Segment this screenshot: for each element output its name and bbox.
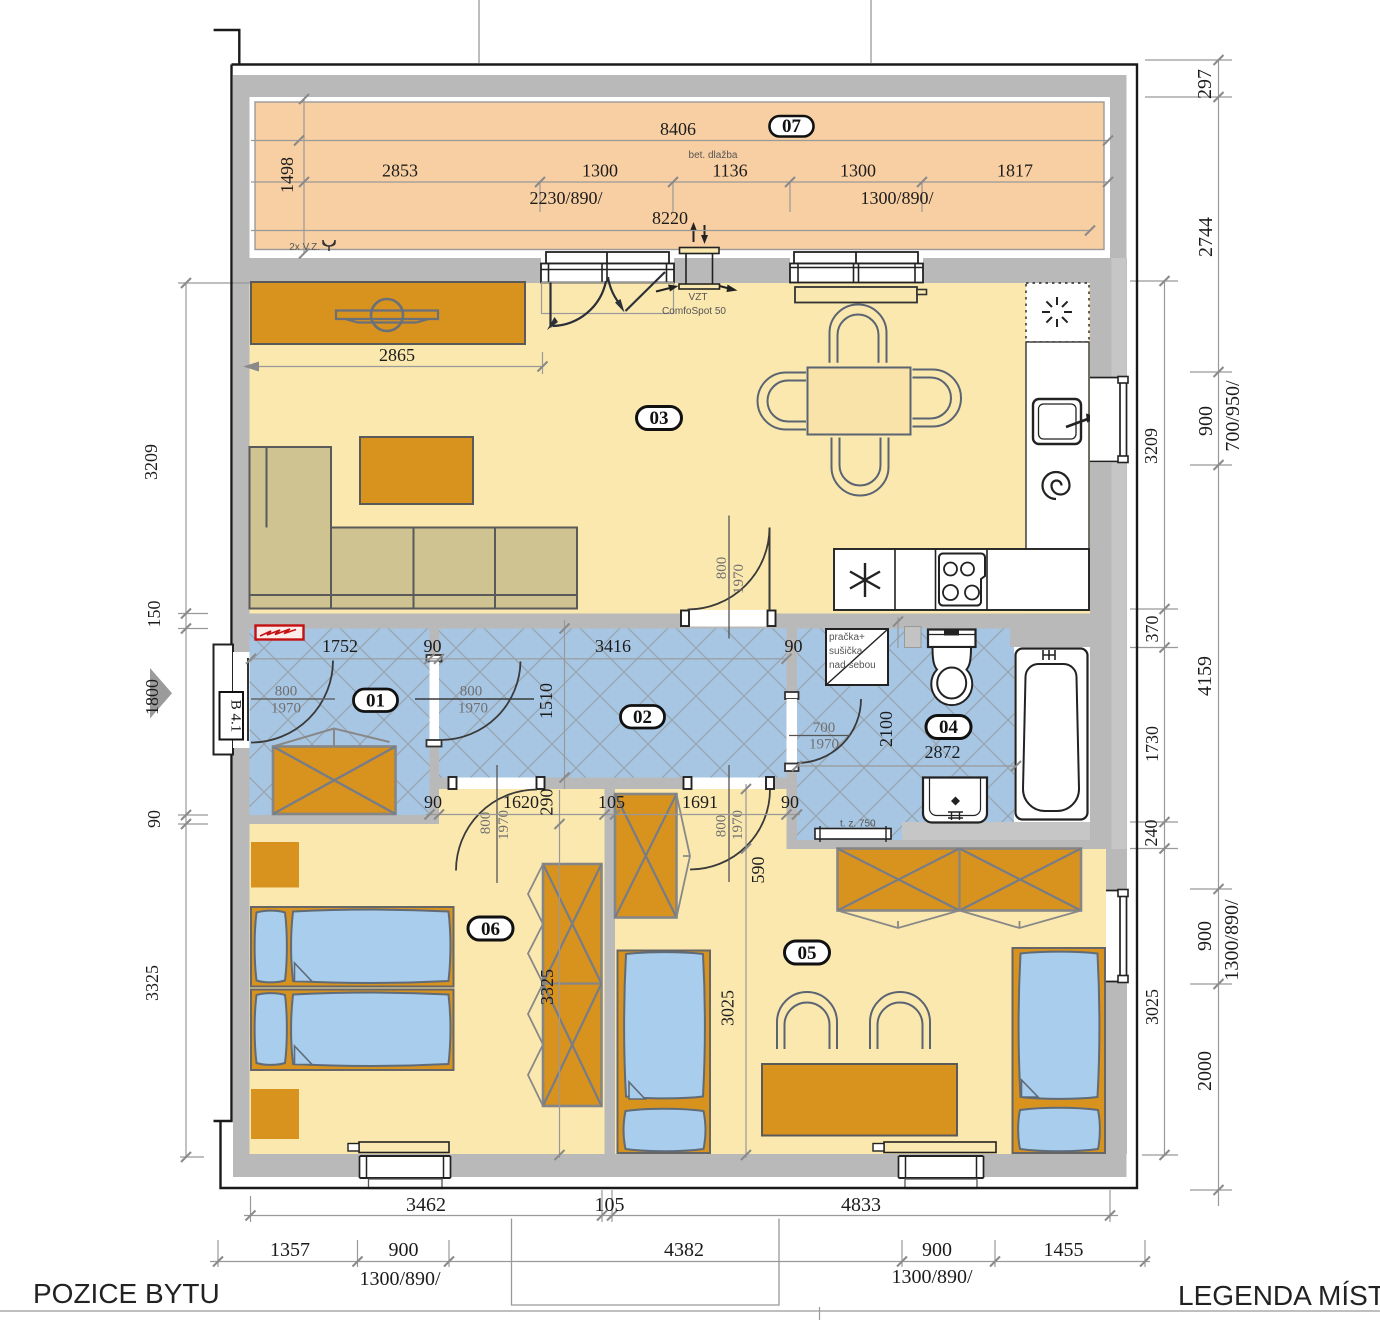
- svg-text:90: 90: [144, 810, 164, 828]
- svg-text:POZICE BYTU: POZICE BYTU: [33, 1278, 220, 1309]
- svg-text:03: 03: [650, 408, 669, 429]
- svg-text:1498: 1498: [277, 157, 297, 193]
- svg-text:2744: 2744: [1195, 217, 1217, 257]
- svg-text:370: 370: [1142, 616, 1162, 643]
- svg-text:sušička: sušička: [829, 646, 863, 657]
- svg-text:90: 90: [781, 792, 799, 812]
- svg-text:3325: 3325: [142, 965, 162, 1001]
- svg-text:900: 900: [1194, 921, 1216, 951]
- svg-text:1970: 1970: [271, 701, 301, 717]
- svg-text:800: 800: [275, 684, 298, 700]
- svg-text:VZT: VZT: [689, 292, 708, 303]
- svg-text:3325: 3325: [537, 969, 557, 1005]
- svg-text:4159: 4159: [1194, 656, 1216, 696]
- svg-text:1800: 1800: [142, 679, 162, 715]
- svg-text:bet. dlažba: bet. dlažba: [689, 150, 738, 161]
- svg-text:90: 90: [424, 792, 442, 812]
- svg-text:800: 800: [460, 684, 483, 700]
- svg-text:800: 800: [714, 815, 730, 838]
- svg-text:3025: 3025: [1142, 989, 1162, 1025]
- svg-text:150: 150: [144, 601, 164, 628]
- svg-text:4382: 4382: [664, 1239, 704, 1261]
- svg-text:1300/890/: 1300/890/: [1221, 899, 1243, 981]
- svg-text:3209: 3209: [141, 444, 161, 480]
- svg-text:3209: 3209: [1141, 428, 1161, 464]
- svg-text:590: 590: [748, 857, 768, 884]
- svg-text:2865: 2865: [379, 345, 415, 365]
- svg-text:1300/890/: 1300/890/: [359, 1268, 441, 1290]
- svg-text:105: 105: [598, 792, 625, 812]
- svg-text:700/950/: 700/950/: [1222, 380, 1244, 452]
- svg-text:3416: 3416: [595, 636, 631, 656]
- svg-text:1970: 1970: [458, 701, 488, 717]
- svg-text:800: 800: [478, 812, 494, 835]
- svg-text:B 4.1: B 4.1: [228, 700, 244, 733]
- svg-text:nad sebou: nad sebou: [829, 660, 876, 671]
- svg-text:1136: 1136: [712, 161, 747, 181]
- svg-text:2000: 2000: [1194, 1051, 1216, 1091]
- svg-text:1510: 1510: [536, 683, 556, 719]
- svg-text:8406: 8406: [660, 119, 696, 139]
- svg-text:06: 06: [481, 919, 500, 940]
- svg-text:1970: 1970: [809, 737, 839, 753]
- svg-text:1300/890/: 1300/890/: [860, 188, 933, 208]
- svg-text:LEGENDA MÍSTNOSTÍ: LEGENDA MÍSTNOSTÍ: [1178, 1280, 1380, 1311]
- svg-text:2x V.Z.: 2x V.Z.: [289, 242, 320, 253]
- svg-text:1357: 1357: [270, 1239, 310, 1261]
- svg-text:2853: 2853: [382, 161, 418, 181]
- svg-text:900: 900: [389, 1239, 419, 1261]
- svg-text:8220: 8220: [652, 208, 688, 228]
- svg-text:1455: 1455: [1044, 1239, 1084, 1261]
- svg-text:04: 04: [939, 717, 959, 738]
- svg-text:1817: 1817: [997, 161, 1033, 181]
- svg-text:07: 07: [782, 116, 802, 137]
- svg-text:900: 900: [922, 1239, 952, 1261]
- svg-text:297: 297: [1194, 69, 1216, 99]
- svg-text:105: 105: [595, 1194, 625, 1216]
- svg-text:ComfoSpot 50: ComfoSpot 50: [662, 306, 726, 317]
- svg-text:2230/890/: 2230/890/: [529, 188, 602, 208]
- svg-text:240: 240: [1141, 820, 1161, 847]
- svg-text:02: 02: [633, 707, 652, 728]
- svg-text:1300: 1300: [840, 161, 876, 181]
- svg-text:1752: 1752: [322, 636, 358, 656]
- svg-text:90: 90: [785, 636, 803, 656]
- svg-text:290: 290: [537, 789, 557, 816]
- svg-text:2100: 2100: [876, 711, 896, 747]
- svg-text:1300: 1300: [582, 161, 618, 181]
- svg-text:pračka+: pračka+: [829, 632, 865, 643]
- svg-text:4833: 4833: [841, 1194, 881, 1216]
- svg-text:800: 800: [714, 557, 730, 580]
- svg-text:1970: 1970: [731, 564, 747, 594]
- svg-text:90: 90: [424, 636, 442, 656]
- svg-text:1620: 1620: [503, 792, 539, 812]
- svg-text:1691: 1691: [682, 792, 718, 812]
- svg-text:3462: 3462: [406, 1194, 446, 1216]
- svg-text:1730: 1730: [1142, 726, 1162, 762]
- svg-text:2872: 2872: [925, 742, 961, 762]
- svg-text:3025: 3025: [718, 990, 738, 1026]
- svg-text:700: 700: [813, 720, 836, 736]
- svg-text:1300/890/: 1300/890/: [891, 1266, 973, 1288]
- svg-text:01: 01: [366, 691, 385, 712]
- svg-text:t. z. 750: t. z. 750: [840, 819, 876, 830]
- svg-text:05: 05: [798, 943, 817, 964]
- svg-text:900: 900: [1195, 406, 1217, 436]
